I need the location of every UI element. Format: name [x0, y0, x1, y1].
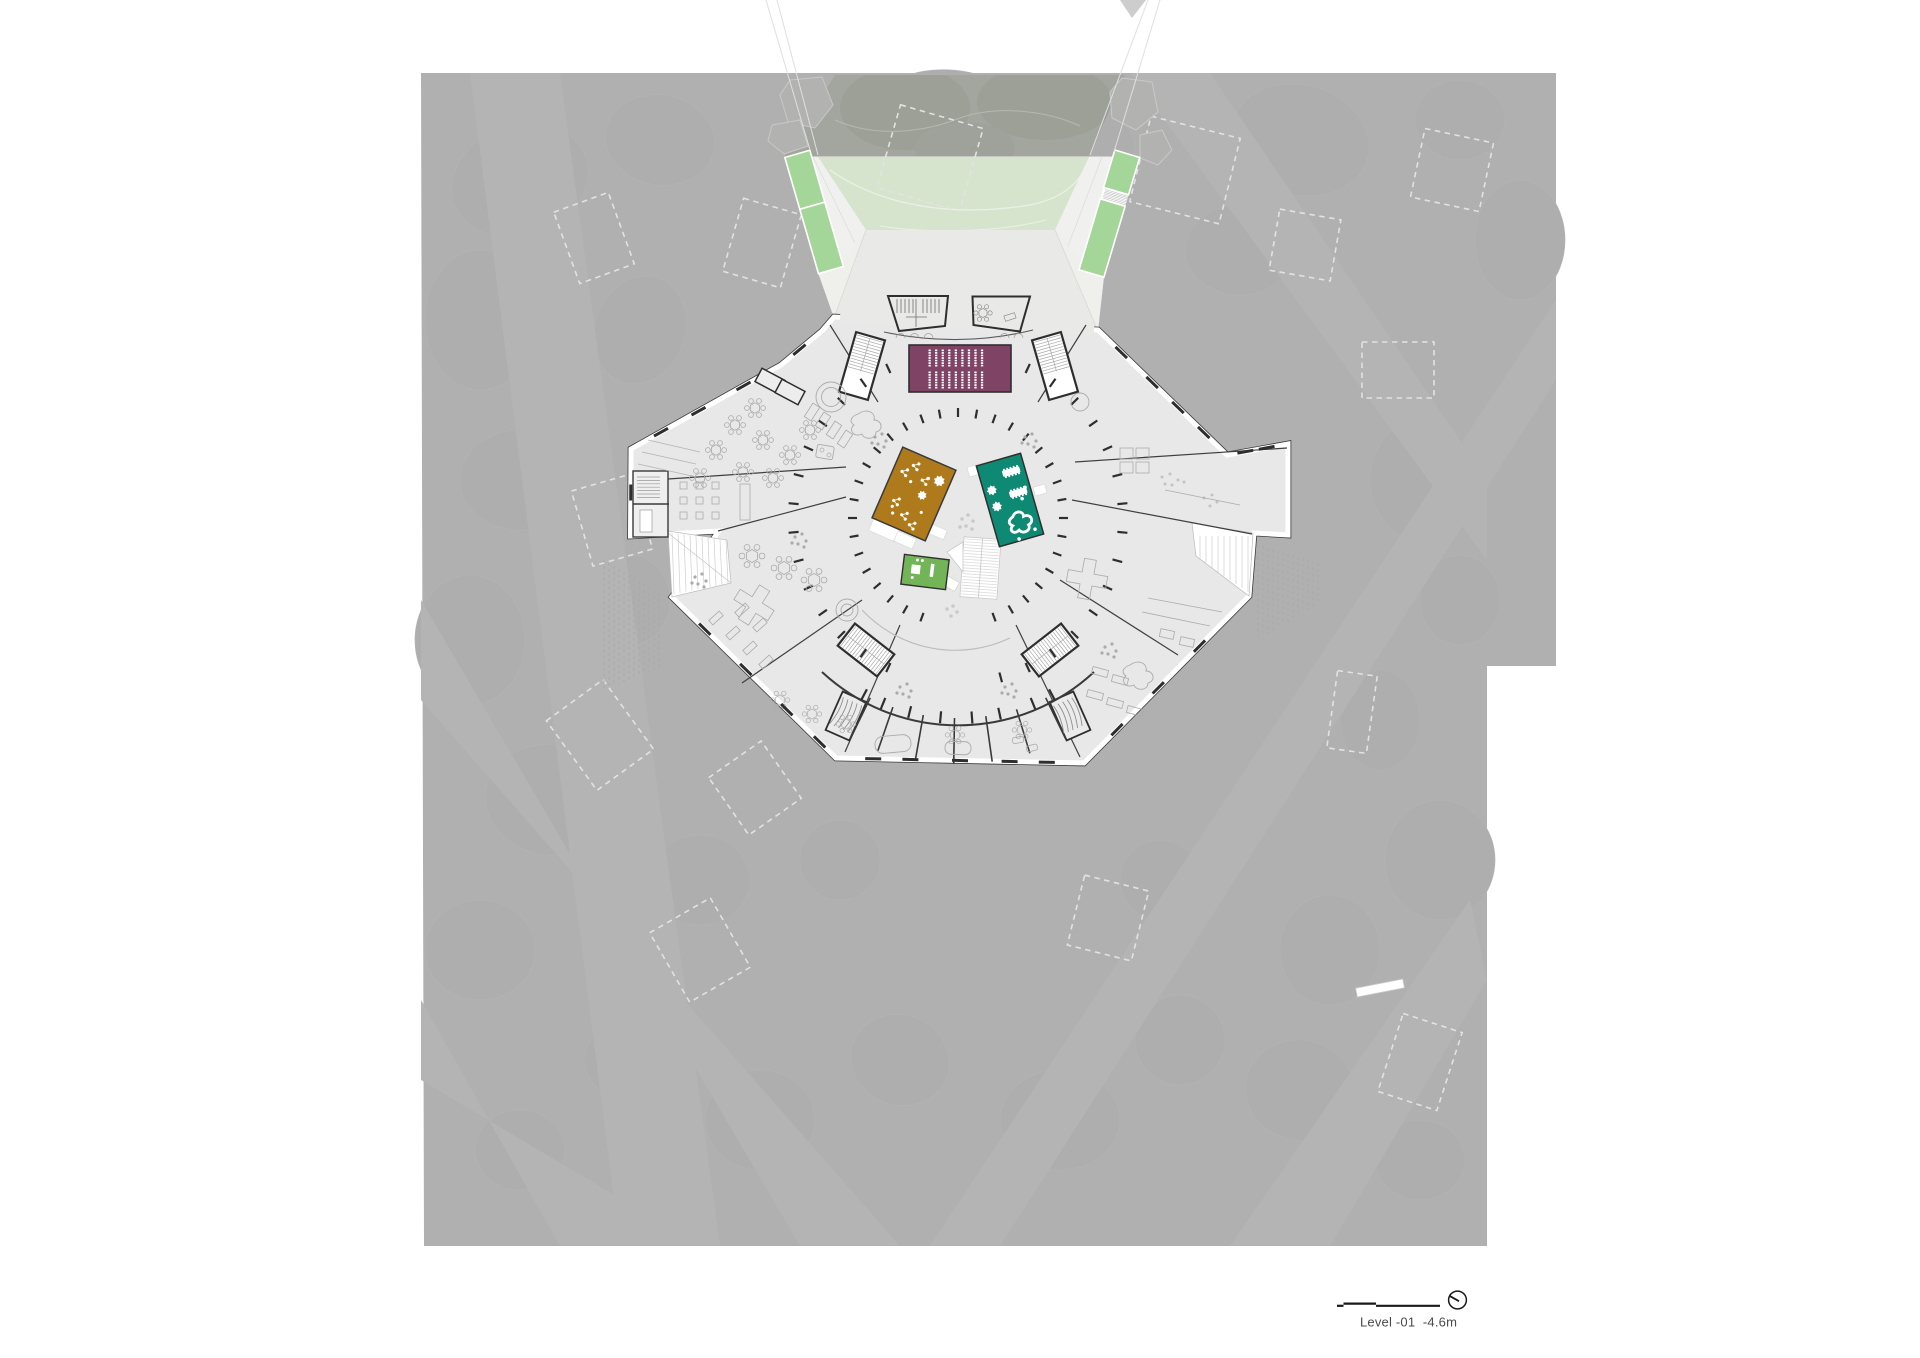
svg-text:Level -01 -4.6m: Level -01 -4.6m — [1360, 1315, 1457, 1330]
